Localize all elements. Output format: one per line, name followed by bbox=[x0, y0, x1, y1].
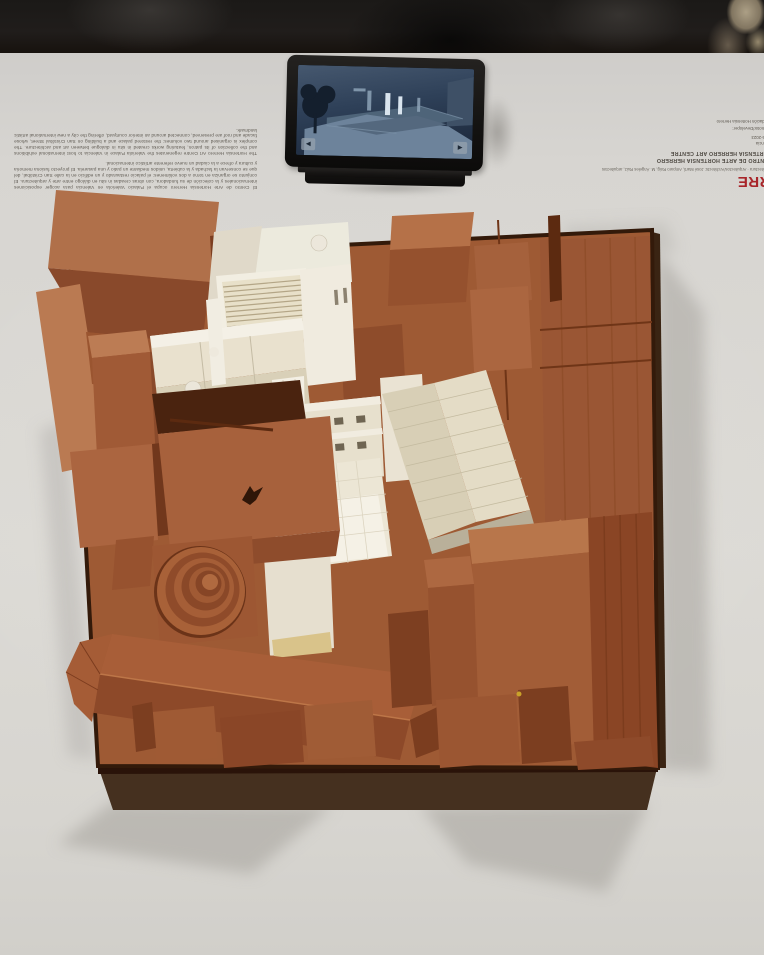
description-spanish: El Centro de Arte Hortensia Herrero ocup… bbox=[14, 161, 257, 190]
church-stepped-dome bbox=[154, 546, 246, 638]
studio-name: ERRE bbox=[588, 173, 764, 189]
description-panel: El Centro de Arte Hortensia Herrero ocup… bbox=[14, 120, 257, 190]
next-slide-button[interactable]: ► bbox=[453, 142, 467, 154]
prev-slide-button[interactable]: ◄ bbox=[301, 138, 315, 150]
developer-label: Promotor/Developer: bbox=[588, 126, 764, 131]
tablet-screen[interactable]: ◄ ► bbox=[296, 65, 474, 159]
project-title-en: HORTENSIA HERRERO ART CENTRE bbox=[588, 150, 764, 156]
developer-name: Fundación Hortensia Herrero bbox=[588, 119, 764, 124]
render-image bbox=[296, 65, 474, 159]
architects-credit: arquitectura · Arquitectos/Architects: J… bbox=[588, 167, 764, 172]
description-english: The Hortensia Herrero Art Centre regener… bbox=[14, 127, 257, 156]
brass-pin bbox=[517, 692, 522, 697]
palace-dome-turret bbox=[311, 235, 327, 251]
tablet-shadow bbox=[478, 85, 526, 180]
tablet-device: ◄ ► bbox=[285, 55, 486, 172]
project-title-es: CENTRO DE ARTE HORTENSIA HERRERO bbox=[588, 157, 764, 163]
project-years: 2016-2023 bbox=[588, 135, 764, 140]
project-location: Valencia bbox=[588, 141, 764, 146]
title-panel: ERRE arquitectura · Arquitectos/Architec… bbox=[588, 91, 764, 189]
